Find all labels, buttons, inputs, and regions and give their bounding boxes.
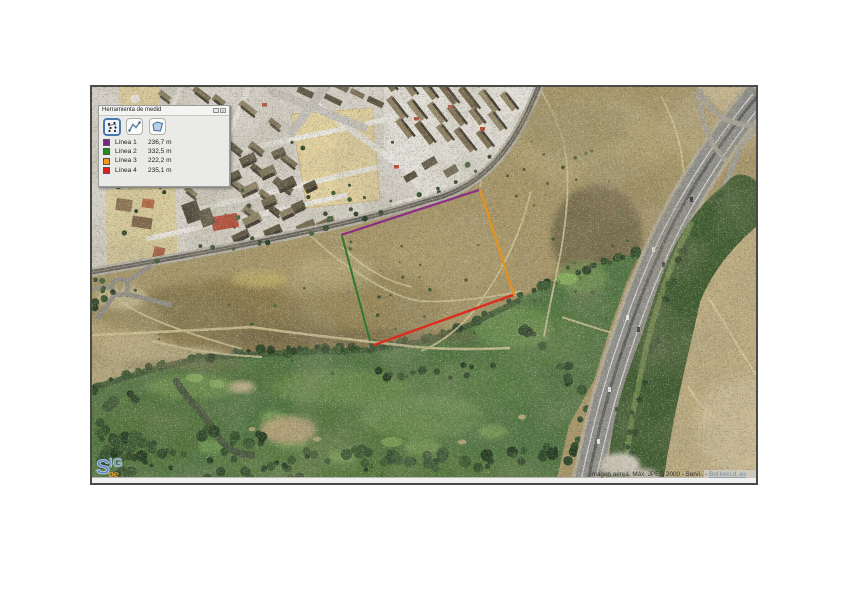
svg-text:Imagen aérea. Máx. JPEG 2000 -: Imagen aérea. Máx. JPEG 2000 - Servi.. -… [590,471,746,478]
svg-text:IG: IG [109,455,123,470]
